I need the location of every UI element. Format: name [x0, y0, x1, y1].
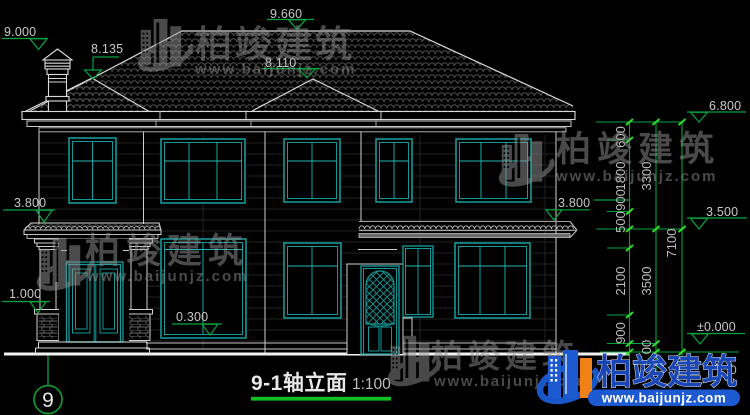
- svg-text:www.baijunjz.com: www.baijunjz.com: [194, 61, 356, 78]
- svg-text:www.baijunjz.com: www.baijunjz.com: [601, 391, 727, 406]
- svg-text:8.135: 8.135: [91, 42, 123, 56]
- svg-text:900: 900: [613, 189, 628, 211]
- svg-text:柏竣建筑: 柏竣建筑: [195, 23, 355, 65]
- svg-text:7100: 7100: [664, 229, 679, 258]
- svg-text:柏竣建筑: 柏竣建筑: [597, 352, 737, 392]
- svg-text:2100: 2100: [613, 267, 628, 296]
- svg-text:6.800: 6.800: [709, 99, 741, 113]
- svg-text:柏竣建筑: 柏竣建筑: [556, 129, 720, 169]
- svg-text:3.500: 3.500: [706, 205, 738, 219]
- svg-text:9: 9: [42, 389, 54, 412]
- svg-text:3.800: 3.800: [14, 196, 46, 210]
- svg-text:±0.000: ±0.000: [697, 320, 736, 334]
- svg-text:9-1轴立面: 9-1轴立面: [251, 371, 347, 395]
- svg-text:3.800: 3.800: [558, 196, 590, 210]
- svg-text:3500: 3500: [639, 267, 654, 296]
- svg-text:www.baijunjz.com: www.baijunjz.com: [86, 268, 248, 285]
- svg-text:900: 900: [613, 322, 628, 344]
- svg-text:0.300: 0.300: [176, 310, 208, 324]
- svg-text:www.baijunjz.com: www.baijunjz.com: [555, 168, 717, 185]
- svg-text:1.000: 1.000: [9, 287, 41, 301]
- svg-text:1:100: 1:100: [352, 376, 391, 393]
- svg-text:9.000: 9.000: [4, 25, 36, 39]
- svg-text:柏竣建筑: 柏竣建筑: [85, 231, 249, 271]
- svg-text:500: 500: [613, 211, 628, 233]
